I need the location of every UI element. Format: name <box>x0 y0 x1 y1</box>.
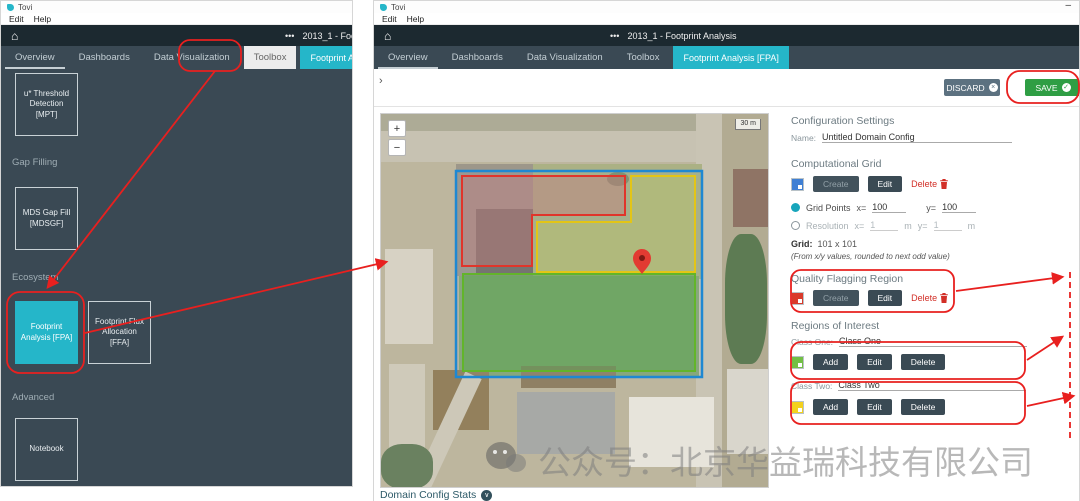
tile-mds-gap-fill[interactable]: MDS Gap Fill [MDSGF] <box>15 187 78 250</box>
section-ecosystem: Ecosystem <box>12 272 58 283</box>
tab-data-visualization[interactable]: Data Visualization <box>517 46 613 69</box>
section-advanced: Advanced <box>12 392 54 403</box>
save-check-icon: ✓ <box>1062 83 1071 92</box>
regions-of-interest-title: Regions of Interest <box>791 320 1067 332</box>
left-header-title: ••• 2013_1 - Footprint Analysis <box>285 25 352 46</box>
screenshot-stage: Tovi Edit Help ⌂ ••• 2013_1 - Footprint … <box>0 0 1080 501</box>
right-tabbar: Overview Dashboards Data Visualization T… <box>374 46 1079 69</box>
trash-icon <box>940 293 948 303</box>
left-window-title: Tovi <box>18 3 32 12</box>
chevron-down-icon: ∨ <box>481 490 492 501</box>
more-dots-icon[interactable]: ••• <box>610 31 619 41</box>
map-scale-label: 30 m <box>735 119 761 130</box>
tab-data-visualization[interactable]: Data Visualization <box>144 46 240 69</box>
class-one-edit-button[interactable]: Edit <box>857 354 892 370</box>
grid-note: (From x/y values, rounded to next odd va… <box>791 252 1067 261</box>
domain-config-stats-toggle[interactable]: Domain Config Stats ∨ <box>380 489 492 501</box>
zoom-in-button[interactable]: + <box>388 120 406 137</box>
quality-edit-button[interactable]: Edit <box>868 290 903 306</box>
resolution-radio[interactable] <box>791 221 800 230</box>
discard-button[interactable]: DISCARD × <box>944 79 1000 96</box>
section-gap-filling: Gap Filling <box>12 157 57 168</box>
config-settings-title: Configuration Settings <box>791 115 1067 127</box>
map-zoom-controls: + − <box>388 120 406 156</box>
resolution-y-input[interactable] <box>934 220 962 231</box>
class-two-layer-icon <box>791 401 804 414</box>
resolution-x-input[interactable] <box>870 220 898 231</box>
toolbar-divider <box>374 106 1080 107</box>
quality-create-button[interactable]: Create <box>813 290 859 306</box>
right-app-header: ⌂ ••• 2013_1 - Footprint Analysis <box>374 25 1079 46</box>
quality-layer-icon <box>791 292 804 305</box>
minimize-icon[interactable]: – <box>1065 1 1071 11</box>
class-one-label: Class One: <box>791 337 833 347</box>
trash-icon <box>940 179 948 189</box>
tile-footprint-flux-allocation[interactable]: Footprint Flux Allocation [FFA] <box>88 301 151 364</box>
tovi-logo-icon <box>380 4 387 11</box>
tab-dashboards[interactable]: Dashboards <box>69 46 140 69</box>
menu-help[interactable]: Help <box>407 14 424 24</box>
tile-ustar-threshold[interactable]: u* Threshold Detection [MPT] <box>15 73 78 136</box>
grid-points-label: Grid Points <box>806 203 851 213</box>
quality-delete-button[interactable]: Delete <box>911 293 948 303</box>
class-one-delete-button[interactable]: Delete <box>901 354 946 370</box>
grid-points-y-input[interactable] <box>942 202 976 213</box>
class-two-add-button[interactable]: Add <box>813 399 848 415</box>
left-window: Tovi Edit Help ⌂ ••• 2013_1 - Footprint … <box>0 0 353 487</box>
class-one-layer-icon <box>791 356 804 369</box>
grid-size-label: Grid: <box>791 239 813 249</box>
class-one-region-polygon[interactable] <box>463 274 695 371</box>
left-titlebar: Tovi <box>1 1 352 13</box>
right-header-title: ••• 2013_1 - Footprint Analysis <box>610 25 737 46</box>
grid-create-button[interactable]: Create <box>813 176 859 192</box>
tab-dashboards[interactable]: Dashboards <box>442 46 513 69</box>
right-window: Tovi – Edit Help ⌂ ••• 2013_1 - Footprin… <box>373 0 1080 501</box>
menu-help[interactable]: Help <box>34 14 51 24</box>
menu-edit[interactable]: Edit <box>382 14 397 24</box>
class-two-delete-button[interactable]: Delete <box>901 399 946 415</box>
tab-footprint-analysis[interactable]: Footprint Analysis [FPA] <box>673 46 788 69</box>
panel-collapse-chevron-icon[interactable]: › <box>379 75 383 87</box>
class-two-input[interactable] <box>838 380 1026 391</box>
satellite-map[interactable]: + − 30 m <box>380 113 769 488</box>
class-two-label: Class Two: <box>791 381 832 391</box>
tab-toolbox[interactable]: Toolbox <box>244 46 297 69</box>
tab-overview[interactable]: Overview <box>378 46 438 69</box>
grid-delete-button[interactable]: Delete <box>911 179 948 189</box>
left-menubar: Edit Help <box>1 13 352 25</box>
tab-toolbox[interactable]: Toolbox <box>617 46 670 69</box>
name-label: Name: <box>791 133 816 143</box>
tovi-logo-icon <box>7 4 14 11</box>
discard-x-icon: × <box>989 83 998 92</box>
config-name-input[interactable] <box>822 132 1012 143</box>
grid-size-value: 101 x 101 <box>818 239 858 249</box>
right-window-title: Tovi <box>391 3 405 12</box>
resolution-label: Resolution <box>806 221 849 231</box>
tile-footprint-analysis[interactable]: Footprint Analysis [FPA] <box>15 301 78 364</box>
more-dots-icon[interactable]: ••• <box>285 31 294 41</box>
left-app-header: ⌂ ••• 2013_1 - Footprint Analysis <box>1 25 352 46</box>
quality-flagging-title: Quality Flagging Region <box>791 273 1067 285</box>
tab-footprint-analysis[interactable]: Footprint Analysis [FPA] <box>300 46 353 69</box>
tile-notebook[interactable]: Notebook <box>15 418 78 481</box>
map-regions-overlay <box>381 114 769 488</box>
right-menubar: Edit Help <box>374 13 1079 25</box>
home-icon[interactable]: ⌂ <box>11 30 18 42</box>
config-panel: Configuration Settings Name: Computation… <box>791 115 1067 415</box>
grid-points-x-input[interactable] <box>872 202 906 213</box>
class-two-edit-button[interactable]: Edit <box>857 399 892 415</box>
grid-points-radio[interactable] <box>791 203 800 212</box>
zoom-out-button[interactable]: − <box>388 139 406 156</box>
grid-layer-icon <box>791 178 804 191</box>
menu-edit[interactable]: Edit <box>9 14 24 24</box>
grid-edit-button[interactable]: Edit <box>868 176 903 192</box>
right-titlebar: Tovi – <box>374 1 1079 13</box>
class-one-input[interactable] <box>839 336 1027 347</box>
left-tabbar: Overview Dashboards Data Visualization T… <box>1 46 352 69</box>
computational-grid-title: Computational Grid <box>791 158 1067 170</box>
save-button[interactable]: SAVE ✓ <box>1025 79 1080 96</box>
home-icon[interactable]: ⌂ <box>384 30 391 42</box>
toolbox-panel: u* Threshold Detection [MPT] Gap Filling… <box>1 69 352 487</box>
class-one-add-button[interactable]: Add <box>813 354 848 370</box>
tab-overview[interactable]: Overview <box>5 46 65 69</box>
